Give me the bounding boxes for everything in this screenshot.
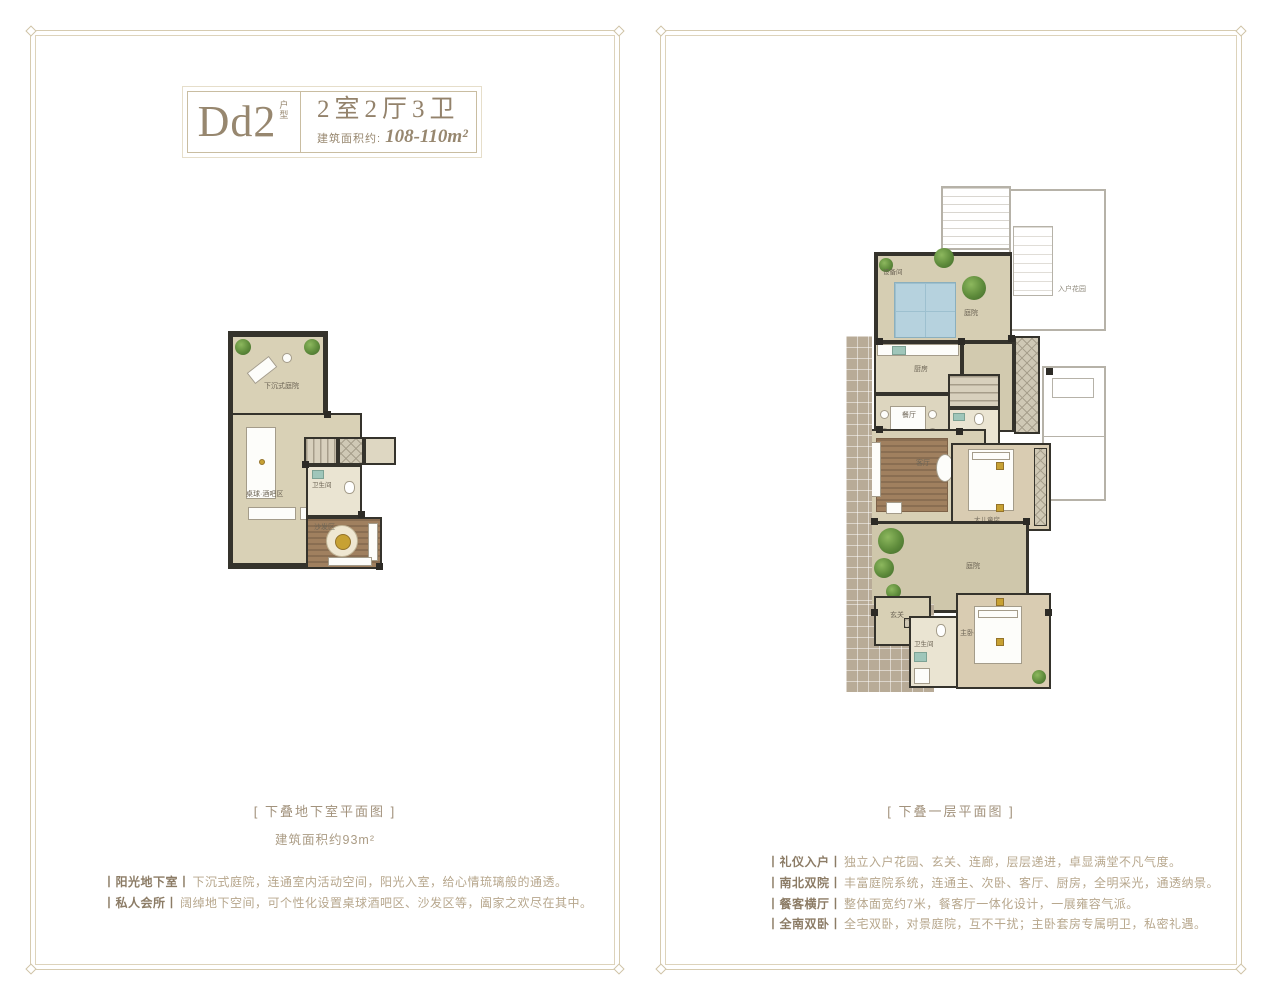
column — [871, 609, 878, 616]
feature-item: 丨礼仪入户丨独立入户花园、玄关、连廊，层层递进，卓显满堂不凡气度。 — [767, 856, 1219, 870]
frame-corner-ornament — [655, 25, 666, 36]
sink-icon — [892, 346, 906, 355]
round-table-icon — [335, 534, 351, 550]
wall-sconce-icon — [996, 638, 1004, 646]
feature-item: 丨餐客横厅丨整体面宽约7米，餐客厅一体化设计，一展雍容气派。 — [767, 898, 1219, 912]
feature-title: 丨全南双卧丨 — [767, 917, 842, 931]
right-panel: 入户花园 设备间 庭院 厨房 餐厅 — [660, 30, 1242, 970]
column — [871, 518, 878, 525]
unit-header: Dd2 户型 2室2厅3卫 建筑面积约:108-110m² — [187, 91, 477, 153]
column — [876, 426, 883, 433]
plan-caption: [ 下叠一层平面图 ] — [661, 801, 1241, 820]
room-label-master: 主卧 — [960, 628, 974, 638]
corridor-steps-outline — [1013, 226, 1053, 296]
pillow-icon — [978, 610, 1018, 618]
column — [358, 511, 365, 518]
area-label: 建筑面积约: — [317, 133, 381, 145]
column — [958, 338, 965, 345]
feature-text: 整体面宽约7米，餐客厅一体化设计，一展雍容气派。 — [844, 897, 1139, 911]
plant-icon — [878, 528, 904, 554]
pool-icon — [894, 282, 956, 338]
toilet-icon — [974, 413, 984, 425]
pillow-icon — [972, 452, 1010, 460]
room-stair-landing — [364, 437, 396, 465]
room-label-kitchen: 厨房 — [914, 364, 928, 374]
sink-icon — [914, 652, 927, 662]
stairs — [948, 374, 1000, 408]
column — [956, 428, 963, 435]
sink-icon — [953, 413, 965, 421]
plan-caption: [ 下叠地下室平面图 ] — [31, 801, 619, 820]
feature-text: 全宅双卧，对景庭院，互不干扰；主卧套房专属明卫，私密礼遇。 — [844, 917, 1207, 931]
room-label-bath2: 卫生间 — [914, 638, 934, 648]
room-label-north-yard: 庭院 — [964, 308, 978, 318]
area-value: 108-110m² — [385, 126, 468, 147]
feature-text: 独立入户花园、玄关、连廊，层层递进，卓显满堂不凡气度。 — [844, 855, 1182, 869]
plant-icon — [962, 276, 986, 300]
column — [876, 338, 883, 345]
frame-corner-ornament — [613, 25, 624, 36]
toilet-icon — [936, 624, 946, 637]
frame-corner-ornament — [25, 25, 36, 36]
column — [376, 563, 383, 570]
wardrobe-icon — [1034, 448, 1047, 526]
sofa-icon — [368, 523, 378, 561]
room-label-entry-garden: 入户花园 — [1058, 284, 1086, 294]
feature-title: 丨阳光地下室丨 — [103, 875, 191, 889]
plant-icon — [874, 558, 894, 578]
billiard-ball-icon — [259, 459, 265, 465]
kitchen-counter-icon — [877, 344, 959, 356]
feature-title: 丨南北双院丨 — [767, 876, 842, 890]
under-stair-storage — [338, 437, 364, 465]
column — [1023, 518, 1030, 525]
feature-list: 丨礼仪入户丨独立入户花园、玄关、连廊，层层递进，卓显满堂不凡气度。 丨南北双院丨… — [767, 856, 1219, 939]
column — [324, 411, 331, 418]
room-label-bath: 卫生间 — [312, 479, 332, 489]
basement-floorplan: 下沉式庭院 桌球·酒吧区 卫生间 沙发区 — [226, 331, 438, 581]
chair-icon — [928, 410, 937, 419]
room-label-equipment: 设备间 — [883, 266, 903, 276]
sink-icon — [312, 470, 324, 479]
area-line: 建筑面积约:108-110m² — [317, 126, 476, 148]
feature-title: 丨礼仪入户丨 — [767, 855, 842, 869]
wall-sconce-icon — [996, 462, 1004, 470]
plant-icon — [235, 339, 251, 355]
column — [1008, 335, 1015, 342]
frame-corner-ornament — [1235, 963, 1246, 974]
frame-corner-ornament — [655, 963, 666, 974]
plan-area-note: 建筑面积约93m² — [31, 829, 619, 848]
bathtub-outline — [1052, 378, 1094, 398]
corridor-hatch — [1014, 336, 1040, 434]
shower-icon — [914, 668, 930, 684]
plant-icon — [304, 339, 320, 355]
room-label-courtyard: 下沉式庭院 — [264, 381, 299, 391]
feature-title: 丨私人会所丨 — [103, 896, 178, 910]
feature-title: 丨餐客横厅丨 — [767, 897, 842, 911]
room-label-foyer: 玄关 — [890, 610, 904, 620]
sofa-icon — [328, 557, 372, 566]
room-label-dining: 餐厅 — [902, 410, 916, 420]
wall-sconce-icon — [996, 598, 1004, 606]
brochure-page: Dd2 户型 2室2厅3卫 建筑面积约:108-110m² 下沉式庭院 — [0, 0, 1269, 999]
armchair-icon — [886, 502, 902, 514]
unit-code-cell: Dd2 户型 — [188, 92, 301, 152]
feature-text: 阔绰地下空间，可个性化设置桌球酒吧区、沙发区等，阖家之欢尽在其中。 — [180, 896, 593, 910]
feature-text: 下沉式庭院，连通室内活动空间，阳光入室，给心情琉璃般的通透。 — [193, 875, 568, 889]
left-panel: Dd2 户型 2室2厅3卫 建筑面积约:108-110m² 下沉式庭院 — [30, 30, 620, 970]
exterior-stairs-outline — [941, 186, 1011, 250]
toilet-icon — [344, 481, 355, 494]
plant-icon — [1032, 670, 1046, 684]
stool-icon — [282, 353, 292, 363]
room-label-sofa: 沙发区 — [314, 522, 335, 532]
first-floor-floorplan: 入户花园 设备间 庭院 厨房 餐厅 — [846, 186, 1108, 694]
garden-path — [846, 336, 872, 618]
feature-item: 丨南北双院丨丰富庭院系统，连通主、次卧、客厅、厨房，全明采光，通透纳景。 — [767, 877, 1219, 891]
side-room-divider — [1042, 436, 1106, 437]
layout-spec: 2室2厅3卫 — [317, 96, 476, 125]
column — [1045, 609, 1052, 616]
feature-item: 丨全南双卧丨全宅双卧，对景庭院，互不干扰；主卧套房专属明卫，私密礼遇。 — [767, 918, 1219, 932]
frame-corner-ornament — [25, 963, 36, 974]
bar-counter-icon — [248, 507, 296, 520]
plant-icon — [934, 248, 954, 268]
unit-spec-cell: 2室2厅3卫 建筑面积约:108-110m² — [301, 92, 476, 152]
unit-tag: 户型 — [279, 100, 290, 121]
stairs — [304, 437, 338, 465]
frame-corner-ornament — [613, 963, 624, 974]
wall-sconce-icon — [996, 504, 1004, 512]
feature-item: 丨阳光地下室丨下沉式庭院，连通室内活动空间，阳光入室，给心情琉璃般的通透。 — [103, 876, 593, 890]
room-label-south-yard: 庭院 — [966, 561, 980, 571]
unit-code: Dd2 — [198, 100, 277, 144]
feature-list: 丨阳光地下室丨下沉式庭院，连通室内活动空间，阳光入室，给心情琉璃般的通透。 丨私… — [103, 876, 593, 918]
chair-icon — [880, 410, 889, 419]
room-label-billiard: 桌球·酒吧区 — [246, 489, 283, 499]
feature-item: 丨私人会所丨阔绰地下空间，可个性化设置桌球酒吧区、沙发区等，阖家之欢尽在其中。 — [103, 897, 593, 911]
room-label-living: 客厅 — [916, 458, 930, 468]
column — [302, 461, 309, 468]
frame-corner-ornament — [1235, 25, 1246, 36]
column — [1046, 368, 1053, 375]
feature-text: 丰富庭院系统，连通主、次卧、客厅、厨房，全明采光，通透纳景。 — [844, 876, 1219, 890]
